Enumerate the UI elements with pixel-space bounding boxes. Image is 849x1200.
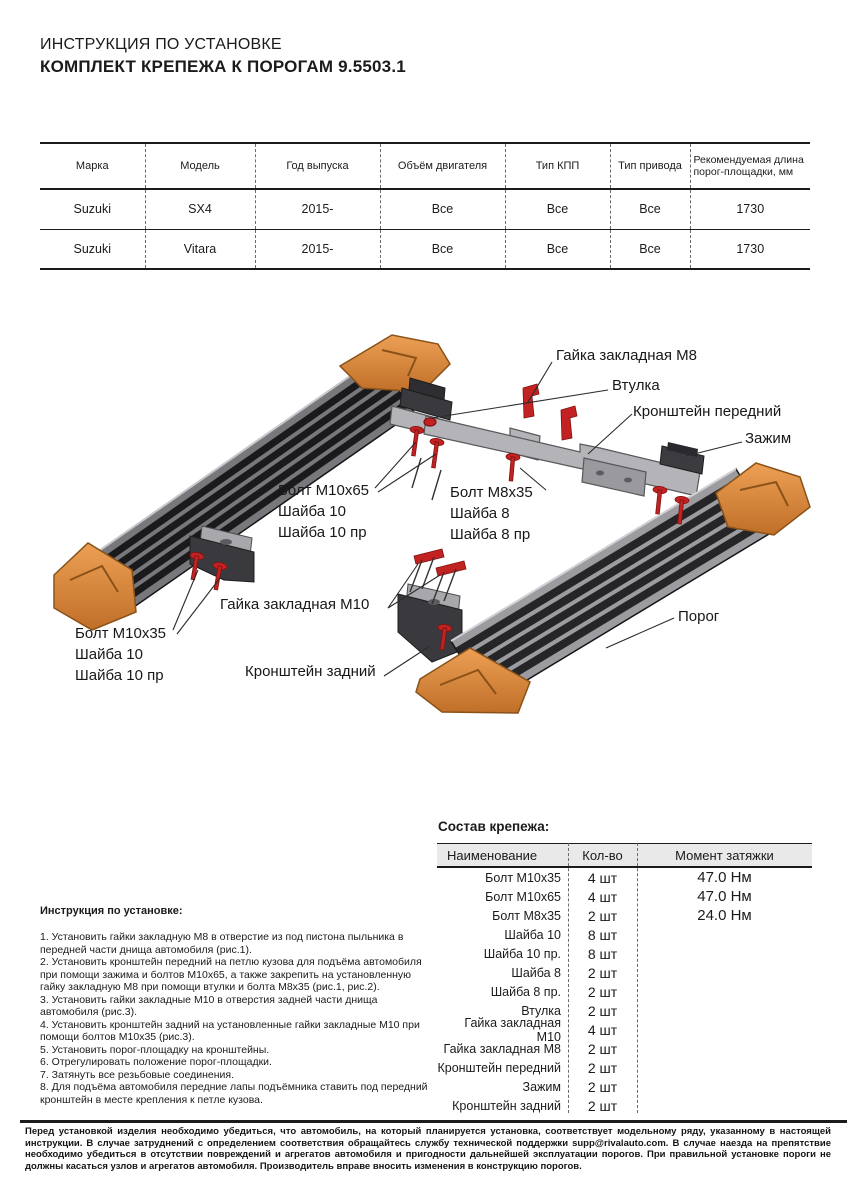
exploded-view-diagram: Гайка закладная М8 Втулка Кронштейн пере… (0, 330, 849, 730)
instruction-step: 2. Установить кронштейн передний на петл… (40, 956, 434, 994)
col-header-torque: Момент затяжки (637, 848, 812, 863)
cell-drive: Все (610, 229, 690, 269)
column-separator (568, 843, 569, 1113)
label-front-bracket: Кронштейн передний (633, 403, 781, 420)
table-row: Шайба 8 пр.2 шт (437, 982, 812, 1001)
cell-engine: Все (380, 229, 505, 269)
end-cap (340, 335, 450, 392)
instruction-step: 3. Установить гайки закладные М10 в отве… (40, 994, 434, 1019)
cell-gearbox: Все (505, 229, 610, 269)
cell-brand: Suzuki (40, 229, 145, 269)
running-board-left (54, 335, 450, 630)
label-captive-nut-m8: Гайка закладная М8 (556, 347, 697, 364)
table-row: Шайба 82 шт (437, 963, 812, 982)
bushing-part (424, 418, 436, 426)
label-line: Шайба 10 (75, 644, 166, 665)
instruction-step: 5. Установить порог-площадку на кронштей… (40, 1044, 434, 1057)
instruction-sheet: ИНСТРУКЦИЯ ПО УСТАНОВКЕ КОМПЛЕКТ КРЕПЕЖА… (0, 0, 849, 1200)
table-row: Кронштейн передний2 шт (437, 1058, 812, 1077)
table-row: Suzuki SX4 2015- Все Все Все 1730 (40, 189, 810, 229)
col-header-qty: Кол-во (568, 848, 637, 863)
bolt-m8x35 (504, 453, 520, 482)
captive-nut-m8 (561, 406, 577, 440)
instruction-step: 1. Установить гайки закладную М8 в отвер… (40, 931, 434, 956)
document-subtitle: КОМПЛЕКТ КРЕПЕЖА К ПОРОГАМ 9.5503.1 (40, 57, 406, 77)
col-header-length: Рекомендуемая длина порог-площадки, мм (690, 143, 810, 189)
parts-table-header: Наименование Кол-во Момент затяжки (437, 843, 812, 868)
table-row: Шайба 10 пр.8 шт (437, 944, 812, 963)
table-row: Гайка закладная М82 шт (437, 1039, 812, 1058)
cell-model: SX4 (145, 189, 255, 229)
table-row: Зажим2 шт (437, 1077, 812, 1096)
instructions-list: 1. Установить гайки закладную М8 в отвер… (40, 931, 434, 1106)
label-line: Болт М10х35 (75, 623, 166, 644)
vehicle-table-header: Марка Модель Год выпуска Объём двигателя… (40, 143, 810, 189)
col-header-drive: Тип привода (610, 143, 690, 189)
col-header-model: Модель (145, 143, 255, 189)
table-row: Кронштейн задний2 шт (437, 1096, 812, 1115)
table-row: Болт М10х654 шт47.0 Нм (437, 887, 812, 906)
label-rear-bracket: Кронштейн задний (245, 663, 376, 680)
label-line: Шайба 10 (278, 501, 369, 522)
footer-disclaimer: Перед установкой изделия необходимо убед… (25, 1126, 831, 1172)
col-header-engine: Объём двигателя (380, 143, 505, 189)
captive-nut-m10 (436, 561, 466, 576)
col-header-year: Год выпуска (255, 143, 380, 189)
label-line: Шайба 10 пр (278, 522, 369, 543)
cell-drive: Все (610, 189, 690, 229)
table-row: Болт М10х354 шт47.0 Нм (437, 868, 812, 887)
instruction-step: 4. Установить кронштейн задний на устано… (40, 1019, 434, 1044)
col-header-brand: Марка (40, 143, 145, 189)
vehicle-table: Марка Модель Год выпуска Объём двигателя… (40, 142, 810, 270)
label-line: Болт М8х35 (450, 482, 533, 503)
cell-year: 2015- (255, 229, 380, 269)
captive-nut-m10 (414, 549, 444, 564)
table-row: Suzuki Vitara 2015- Все Все Все 1730 (40, 229, 810, 269)
parts-list-title: Состав крепежа: (438, 819, 549, 834)
bolt-m10x65 (426, 438, 444, 469)
col-header-gearbox: Тип КПП (505, 143, 610, 189)
footer-divider (20, 1120, 847, 1123)
column-separator (637, 843, 638, 1113)
table-row: Болт М8х352 шт24.0 Нм (437, 906, 812, 925)
cell-brand: Suzuki (40, 189, 145, 229)
bolt-m10x65 (406, 426, 424, 457)
label-bushing: Втулка (612, 377, 660, 394)
table-row: Шайба 108 шт (437, 925, 812, 944)
label-line: Шайба 8 (450, 503, 533, 524)
instructions-heading: Инструкция по установке: (40, 905, 183, 917)
table-row: Гайка закладная М104 шт (437, 1020, 812, 1039)
label-bolt-m10x35: Болт М10х35 Шайба 10 Шайба 10 пр (75, 623, 166, 686)
cell-model: Vitara (145, 229, 255, 269)
instruction-step: 7. Затянуть все резьбовые соединения. (40, 1069, 434, 1082)
label-bolt-m10x65: Болт М10х65 Шайба 10 Шайба 10 пр (278, 480, 369, 543)
document-title: ИНСТРУКЦИЯ ПО УСТАНОВКЕ (40, 36, 282, 54)
bolt-front (651, 486, 668, 515)
label-bolt-m8x35: Болт М8х35 Шайба 8 Шайба 8 пр (450, 482, 533, 545)
parts-table: Наименование Кол-во Момент затяжки Болт … (437, 843, 812, 1115)
label-line: Шайба 10 пр (75, 665, 166, 686)
label-captive-nut-m10: Гайка закладная М10 (220, 596, 369, 613)
cell-length: 1730 (690, 229, 810, 269)
label-board: Порог (678, 608, 719, 625)
cell-year: 2015- (255, 189, 380, 229)
label-clamp: Зажим (745, 430, 791, 447)
label-line: Шайба 8 пр (450, 524, 533, 545)
cell-engine: Все (380, 189, 505, 229)
instruction-step: 8. Для подъёма автомобиля передние лапы … (40, 1081, 434, 1106)
col-header-name: Наименование (437, 848, 568, 863)
instruction-step: 6. Отрегулировать положение порог-площад… (40, 1056, 434, 1069)
cell-gearbox: Все (505, 189, 610, 229)
cell-length: 1730 (690, 189, 810, 229)
label-line: Болт М10х65 (278, 480, 369, 501)
